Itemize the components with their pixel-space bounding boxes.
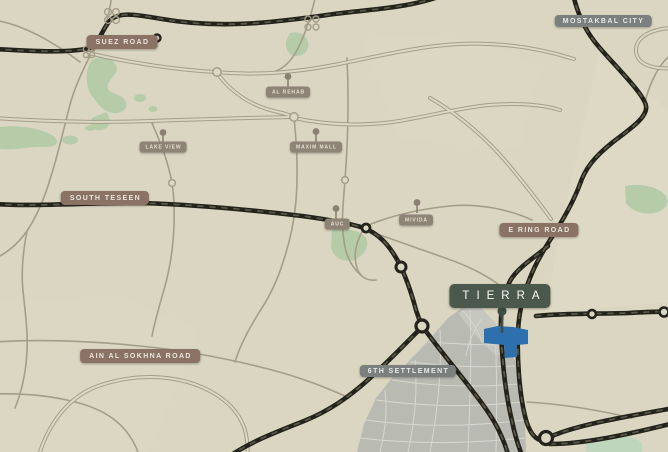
label-auc: AUC (325, 219, 350, 230)
map-pin-icon (333, 206, 338, 219)
label-suez-road: SUEZ ROAD (87, 35, 158, 49)
location-map: SUEZ ROAD SOUTH TESEEN E RING ROAD AIN A… (0, 0, 668, 452)
label-ain-al-sokhna-road: AIN AL SOKHNA ROAD (80, 349, 200, 363)
label-6th-settlement: 6TH SETTLEMENT (360, 365, 456, 377)
label-lake-view: LAKE VIEW (140, 142, 187, 153)
label-maxim-mall: MAXIM MALL (290, 142, 342, 153)
label-e-ring-road: E RING ROAD (499, 223, 578, 237)
minor-roundabouts (169, 68, 349, 187)
label-mivida: MIVIDA (399, 215, 433, 226)
label-al-rehab: AL REHAB (266, 87, 310, 98)
label-south-teseen: SOUTH TESEEN (61, 191, 149, 205)
label-tierra: TIERRA (449, 284, 550, 308)
label-mostakbal-city: MOSTAKBAL CITY (555, 15, 652, 27)
